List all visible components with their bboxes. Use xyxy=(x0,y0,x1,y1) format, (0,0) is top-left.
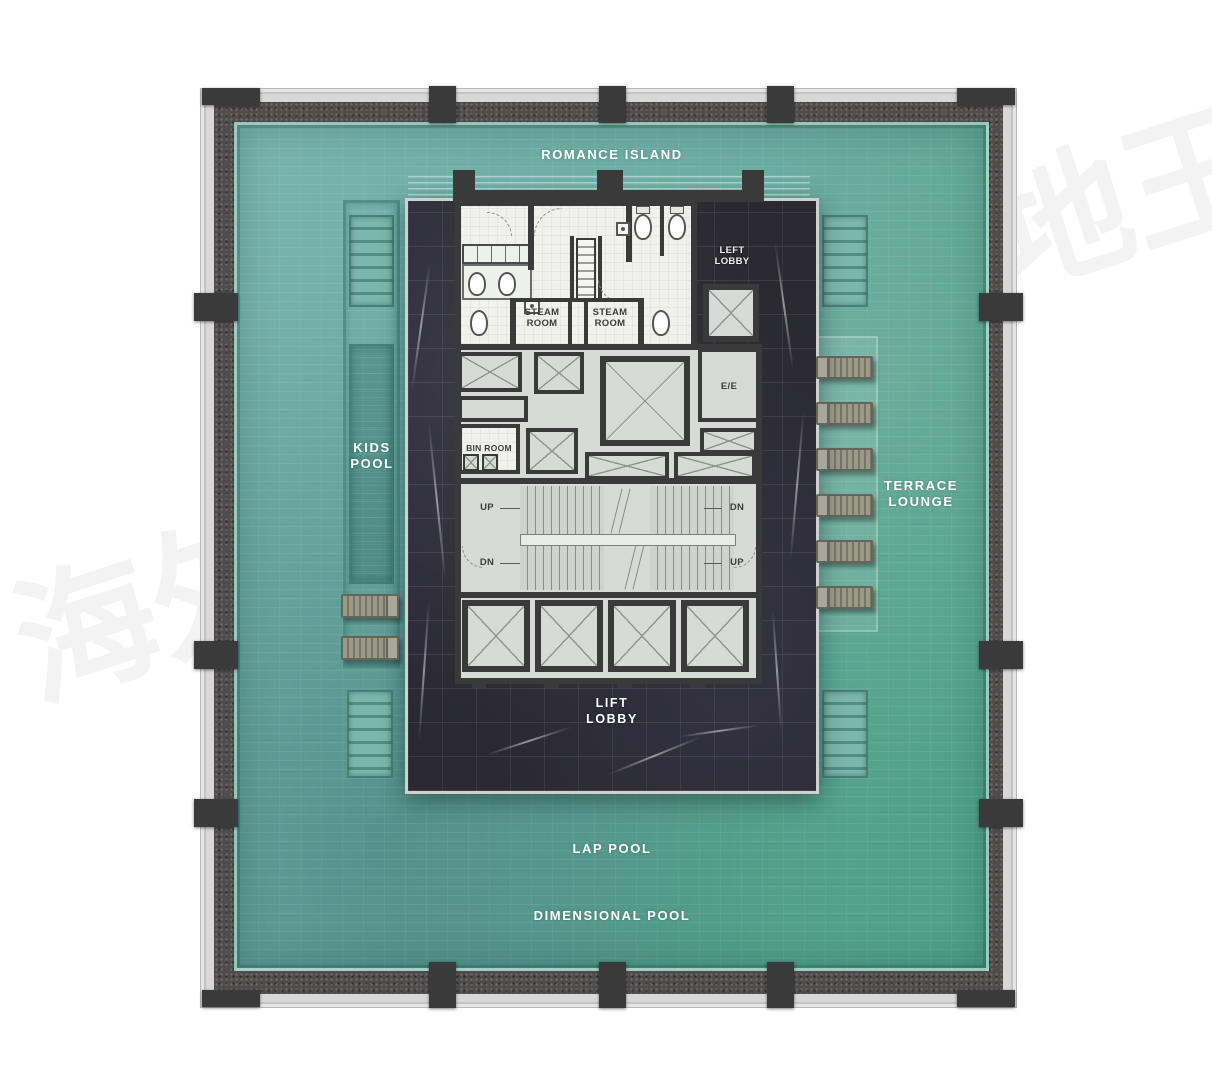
wall-pillar xyxy=(453,170,475,202)
partition-wall xyxy=(528,200,534,270)
marble-vein xyxy=(418,601,430,741)
vent-shaft xyxy=(700,428,758,454)
lounger-icon xyxy=(816,492,873,519)
marble-vein xyxy=(486,726,572,756)
column xyxy=(767,86,794,123)
partition-wall xyxy=(660,200,664,256)
leader-line xyxy=(500,508,520,509)
lounger-pillow xyxy=(816,402,829,425)
lift-door-jamb xyxy=(618,680,632,688)
column xyxy=(599,86,626,123)
vent-shaft xyxy=(585,452,669,480)
lap-pool-label: LAP POOL xyxy=(512,841,712,857)
terrace-lounge-label: TERRACE LOUNGE xyxy=(878,478,964,511)
store-room xyxy=(458,396,528,422)
lift-shaft xyxy=(703,284,759,342)
column xyxy=(194,641,238,669)
pool-steps xyxy=(822,215,868,307)
pool-steps xyxy=(349,215,394,307)
dimensional-pool-label: DIMENSIONAL POOL xyxy=(442,908,782,924)
partition-wall xyxy=(570,236,574,302)
wall-pillar xyxy=(597,170,623,202)
partition-wall xyxy=(568,298,572,344)
stair-direction-label: DN xyxy=(722,503,752,514)
corner-column xyxy=(202,990,260,1007)
partition-wall xyxy=(510,298,644,302)
lounger-icon xyxy=(341,592,399,620)
toilet-tank xyxy=(670,206,684,214)
steam-room-label: STEAM ROOM xyxy=(584,308,636,330)
lounger-pillow xyxy=(386,636,399,660)
toilet-icon xyxy=(634,214,652,240)
marble-vein xyxy=(789,411,804,561)
corner-column xyxy=(957,990,1015,1007)
lounger-pillow xyxy=(816,586,829,609)
steam-room-label: STEAM ROOM xyxy=(516,308,568,330)
lounger-icon xyxy=(816,446,873,473)
kids-pool-label: KIDS POOL xyxy=(336,440,408,473)
lounger-pillow xyxy=(816,494,829,517)
pool-steps xyxy=(822,690,868,778)
column xyxy=(429,86,456,123)
wall-pillar xyxy=(742,170,764,202)
sink-basin xyxy=(498,272,516,296)
lift-door-jamb xyxy=(691,680,705,688)
lift-shaft xyxy=(608,600,676,672)
stair-ladder xyxy=(576,238,596,300)
romance-island-label: ROMANCE ISLAND xyxy=(492,147,732,163)
lounger-pillow xyxy=(816,448,829,471)
pool-steps xyxy=(347,690,393,778)
toilet-icon xyxy=(652,310,670,336)
toilet-tank xyxy=(636,206,650,214)
leader-line xyxy=(704,563,722,564)
bin-locker xyxy=(482,454,498,471)
lounger-icon xyxy=(816,400,873,427)
sink-fixture xyxy=(616,222,630,236)
marble-vein xyxy=(774,241,794,370)
partition-wall xyxy=(638,298,644,344)
toilet-icon xyxy=(668,214,686,240)
lounger-pillow xyxy=(386,594,399,618)
lift-door-jamb xyxy=(545,680,559,688)
lift-shaft xyxy=(681,600,749,672)
column xyxy=(767,962,794,1008)
stair-landing xyxy=(520,534,736,546)
lounger-icon xyxy=(816,538,873,565)
locker-row xyxy=(462,244,532,264)
leader-line xyxy=(500,563,520,564)
column xyxy=(194,799,238,827)
lounger-icon xyxy=(816,354,873,381)
column xyxy=(979,641,1023,669)
leader-line xyxy=(704,508,722,509)
marble-vein xyxy=(772,611,782,731)
vent-shaft xyxy=(458,352,522,392)
bin-room-label: BIN ROOM xyxy=(458,444,520,454)
lift-shaft xyxy=(600,356,690,446)
column xyxy=(979,293,1023,321)
electrical-room-label: E/E xyxy=(698,382,760,393)
lift-door-jamb xyxy=(472,680,486,688)
lift-shaft xyxy=(535,600,603,672)
stair-direction-label: UP xyxy=(472,503,502,514)
lounger-icon xyxy=(341,634,399,662)
corner-column xyxy=(957,88,1015,105)
vent-shaft xyxy=(534,352,584,394)
column xyxy=(429,962,456,1008)
lounger-icon xyxy=(816,584,873,611)
column xyxy=(194,293,238,321)
marble-vein xyxy=(411,261,431,390)
lounger-pillow xyxy=(816,540,829,563)
lift-lobby-label: LIFT LOBBY xyxy=(562,696,662,727)
toilet-icon xyxy=(470,310,488,336)
marble-vein xyxy=(607,736,700,775)
sink-basin xyxy=(468,272,486,296)
bin-locker xyxy=(463,454,479,471)
floor-plan-canvas: 海外 地王 ROMANCE ISLAND KIDS POOL xyxy=(0,0,1212,1081)
vent-shaft xyxy=(526,428,578,474)
marble-vein xyxy=(428,421,447,580)
lift-shaft xyxy=(462,600,530,672)
column xyxy=(979,799,1023,827)
marble-vein xyxy=(679,724,758,737)
left-lobby-label: LEFT LOBBY xyxy=(700,246,764,268)
corner-column xyxy=(202,88,260,105)
column xyxy=(599,962,626,1008)
vent-shaft xyxy=(674,452,756,480)
lounger-pillow xyxy=(816,356,829,379)
